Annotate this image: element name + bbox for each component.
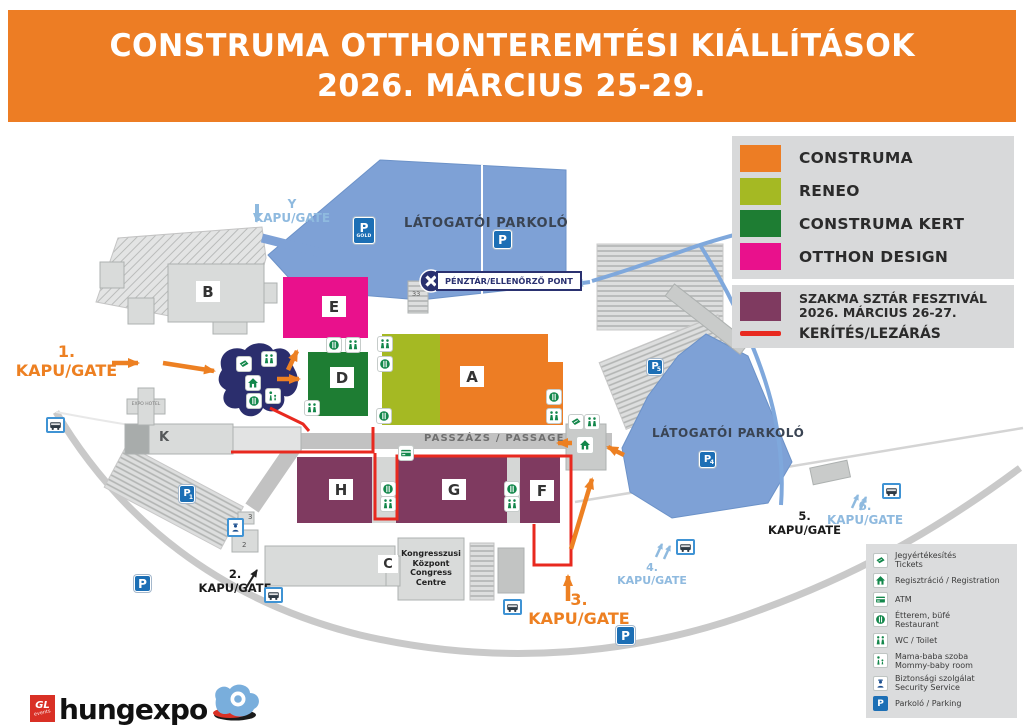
facility-row-parking: P Parkoló / Parking: [873, 696, 1013, 711]
hall-b-annex: [264, 283, 277, 303]
facility-row-registration: Regisztráció / Registration: [873, 573, 1013, 588]
registration-icon: [245, 375, 261, 391]
wc-icon: [584, 414, 600, 430]
bus-stop-icon: [676, 539, 695, 555]
hall-a-label: A: [460, 366, 484, 387]
congress-centre-label: Kongresszusi Központ Congress Centre: [400, 549, 462, 587]
parking-icon: P: [873, 696, 888, 711]
gate-y-label: Y KAPU/GATE: [252, 197, 332, 226]
lot-southwest: [104, 445, 243, 549]
congress-west-wing: [265, 546, 395, 586]
k-row-annex: [233, 427, 301, 453]
hall-f-label: F: [530, 480, 554, 501]
bus-stop-icon: [882, 483, 901, 499]
restaurant-icon: [326, 337, 342, 353]
facility-row-atm: ATM: [873, 592, 1013, 607]
facility-row-tickets: JegyértékesítésTickets: [873, 551, 1013, 569]
bus-stop-icon: [264, 587, 283, 603]
wc-icon: [261, 351, 277, 367]
legend-item-szakma: SZAKMA SZTÁR FESZTIVÁL 2026. MÁRCIUS 26-…: [732, 292, 1014, 321]
construma-swatch: [740, 145, 781, 172]
legend-item-otthon-design: OTTHON DESIGN: [732, 243, 1014, 270]
facility-row-mommy-baby: Mama-baba szobaMommy-baby room: [873, 652, 1013, 670]
parking-icon: P: [134, 575, 151, 592]
gate-6-label: 6. KAPU/GATE: [825, 499, 905, 528]
gate-2-label: 2. KAPU/GATE: [195, 568, 275, 596]
facility-row-restaurant: Étterem, büféRestaurant: [873, 611, 1013, 629]
restaurant-icon: [377, 356, 393, 372]
expo-hotel-label: EXPO HOTEL: [126, 402, 166, 407]
gate4-arrow-2: [664, 546, 670, 559]
restaurant-icon: [504, 481, 520, 497]
venue-map-page: CONSTRUMA OTTHONTEREMTÉSI KIÁLLÍTÁSOK 20…: [0, 0, 1024, 725]
building-3-label: 3: [248, 513, 252, 521]
passage-label: PASSZÁZS / PASSAGE: [424, 433, 565, 444]
reneo-swatch: [740, 178, 781, 205]
bus-stop-icon: [503, 599, 522, 615]
tickets-icon: [236, 356, 252, 372]
restaurant-icon: [546, 389, 562, 405]
parking-5-icon: P 5: [647, 359, 663, 375]
wc-icon: [504, 496, 520, 512]
restaurant-icon: [873, 612, 888, 627]
hall-e-label: E: [322, 296, 346, 317]
legend-item-reneo: RENEO: [732, 178, 1014, 205]
building-33-label: 33: [412, 290, 420, 298]
lot-congress: [470, 543, 494, 600]
small-building: [100, 262, 124, 288]
hall-k-label: K: [155, 428, 173, 446]
wc-icon: [546, 408, 562, 424]
gate-4-label: 4. KAPU/GATE: [612, 561, 692, 587]
legend-item-construma: CONSTRUMA: [732, 145, 1014, 172]
fence-swatch: [740, 331, 781, 336]
gate-3-label: 3. KAPU/GATE: [524, 590, 634, 628]
checkpoint-label: PÉNZTÁR/ELLENŐRZŐ PONT: [443, 271, 582, 291]
security-icon: [873, 676, 888, 691]
hall-g-label: G: [442, 479, 466, 500]
gate-1-label: 1. KAPU/GATE: [14, 342, 119, 380]
hall-b-label: B: [196, 281, 220, 302]
visitor-parking-east-label: LÁTOGATÓI PARKOLÓ: [652, 426, 804, 440]
hall-k-dark-end: [125, 424, 149, 454]
hungexpo-blob-icon: [209, 678, 263, 722]
gate4-arrow-1: [656, 544, 662, 557]
congress-east-block: [498, 548, 524, 593]
wc-icon: [377, 336, 393, 352]
hungexpo-wordmark: hungexpo: [59, 697, 207, 722]
hall-b-annex2: [213, 322, 247, 334]
mommy-baby-icon: [873, 653, 888, 668]
tickets-icon: [568, 414, 584, 430]
hungexpo-logo: GL events hungexpo: [30, 678, 263, 722]
gatehouse-building: [810, 460, 851, 485]
small-building: [128, 298, 154, 324]
security-icon: [227, 518, 244, 537]
registration-icon: [873, 573, 888, 588]
wc-icon: [345, 337, 361, 353]
construma-kert-swatch: [740, 210, 781, 237]
hall-h-label: H: [329, 479, 353, 500]
facility-row-wc: WC / Toilet: [873, 633, 1013, 648]
restaurant-icon: [376, 408, 392, 424]
facilities-legend: JegyértékesítésTickets Regisztráció / Re…: [866, 544, 1017, 718]
visitor-parking-north-label: LÁTOGATÓI PARKOLÓ: [404, 216, 568, 231]
hall-c-label: C: [378, 555, 398, 573]
registration-icon: [576, 436, 594, 454]
wc-icon: [380, 496, 396, 512]
parking-1-icon: P 1: [179, 485, 195, 503]
hall-d-label: D: [330, 367, 354, 388]
facility-row-security: Biztonsági szolgálatSecurity Service: [873, 674, 1013, 692]
parking-gold-icon: P GOLD: [353, 217, 375, 244]
parking-4-icon: P 4: [699, 451, 716, 468]
restaurant-icon: [246, 393, 262, 409]
gl-events-badge: GL events: [30, 695, 55, 722]
otthon-design-swatch: [740, 243, 781, 270]
mommy-baby-icon: [265, 388, 281, 404]
building-2-label: 2: [242, 541, 246, 549]
parking-icon: P: [616, 626, 635, 645]
atm-icon: [873, 592, 888, 607]
legend-item-construma-kert: CONSTRUMA KERT: [732, 210, 1014, 237]
wc-icon: [304, 400, 320, 416]
legend-item-fence: KERÍTÉS/LEZÁRÁS: [732, 326, 1014, 342]
atm-icon: [398, 445, 414, 461]
szakma-swatch: [740, 292, 781, 321]
restaurant-icon: [380, 481, 396, 497]
gate1-arrow-2: [163, 363, 214, 371]
szakma-legend: SZAKMA SZTÁR FESZTIVÁL 2026. MÁRCIUS 26-…: [732, 285, 1014, 348]
exhibition-legend: CONSTRUMA RENEO CONSTRUMA KERT OTTHON DE…: [732, 136, 1014, 279]
parking-icon: P: [493, 230, 512, 249]
gate3-long-arrow: [571, 479, 592, 549]
tickets-icon: [873, 553, 888, 568]
bus-stop-icon: [46, 417, 65, 433]
wc-icon: [873, 633, 888, 648]
hall-a-shape: [440, 334, 563, 425]
